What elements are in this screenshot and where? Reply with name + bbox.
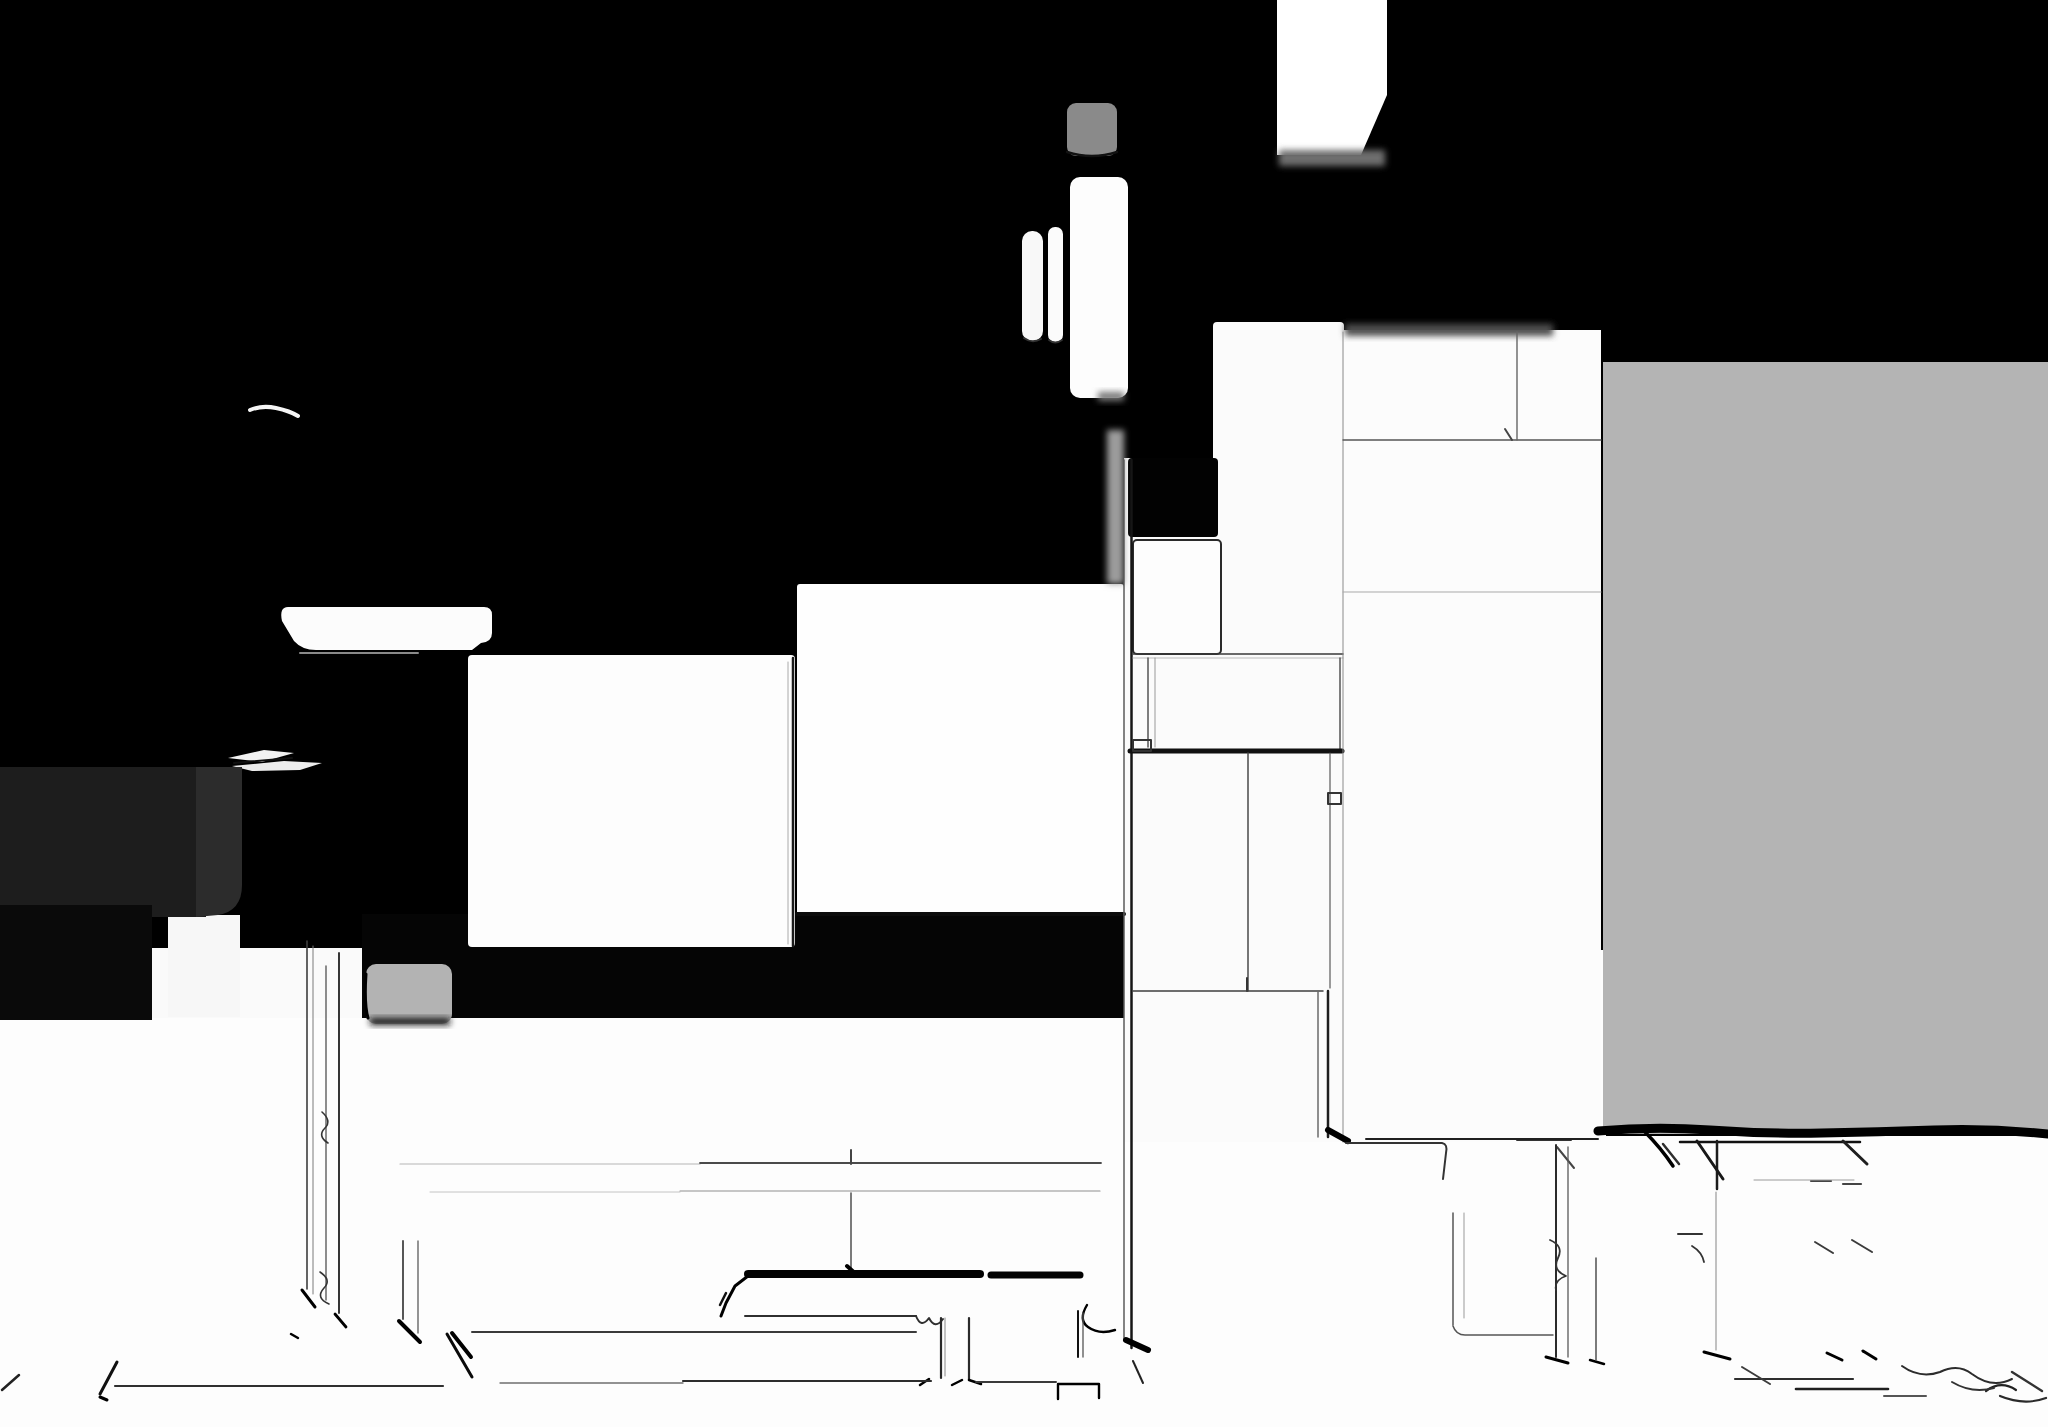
central-cabinet (797, 584, 1124, 916)
column-top-dark-strip (1345, 324, 1553, 336)
white-bar-shadow (1098, 392, 1124, 401)
gray-floor-plane (1603, 362, 2048, 1134)
shape-root (0, 0, 2048, 1427)
black-inset-box (1128, 458, 1218, 537)
gray-cube-low (366, 964, 452, 1024)
white-bar-vertical (1070, 177, 1128, 398)
right-white-column (1343, 330, 1601, 1142)
gray-cube-low-lip (370, 1018, 450, 1025)
left-center-cabinet (468, 655, 795, 947)
panel-outlined (1133, 540, 1221, 654)
pill-left (1022, 231, 1043, 341)
left-dark-block (0, 767, 206, 917)
top-white-block-shadow (1279, 150, 1385, 166)
right-panel-top (1213, 322, 1344, 462)
left-dark-block-edge (196, 767, 242, 917)
scene-canvas (0, 0, 2048, 1427)
floor-white-wedge (168, 915, 240, 1017)
top-white-block (1277, 0, 1387, 155)
left-black-lower (0, 905, 152, 1020)
scene (0, 0, 2048, 1427)
gray-cube (1067, 103, 1117, 156)
pill-right (1048, 227, 1063, 342)
white-shelf-bar (281, 607, 492, 650)
gray-sliver (1107, 430, 1124, 584)
